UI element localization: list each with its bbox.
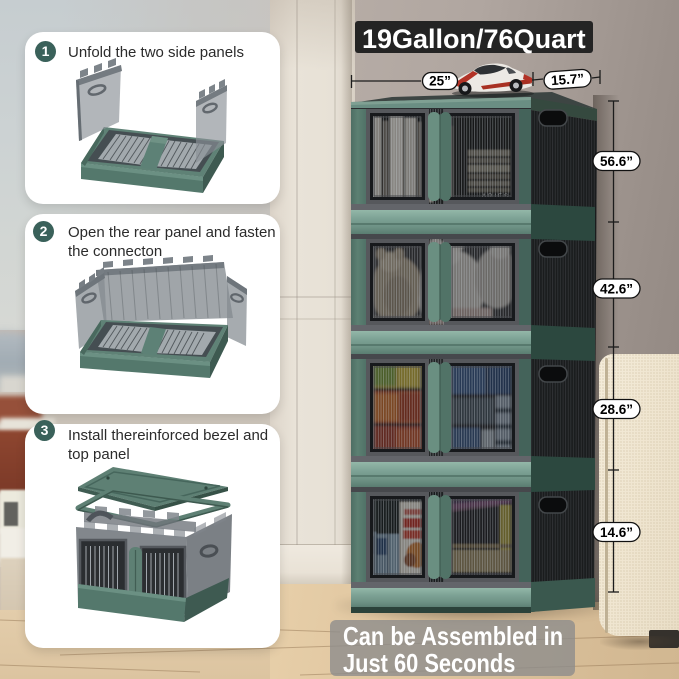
svg-text:56.6”: 56.6”	[600, 154, 633, 169]
svg-text:42.6”: 42.6”	[600, 282, 633, 297]
svg-text:15.7”: 15.7”	[551, 71, 585, 88]
svg-text:25”: 25”	[429, 74, 451, 89]
svg-text:28.6”: 28.6”	[600, 402, 633, 417]
svg-text:14.6”: 14.6”	[600, 525, 633, 540]
